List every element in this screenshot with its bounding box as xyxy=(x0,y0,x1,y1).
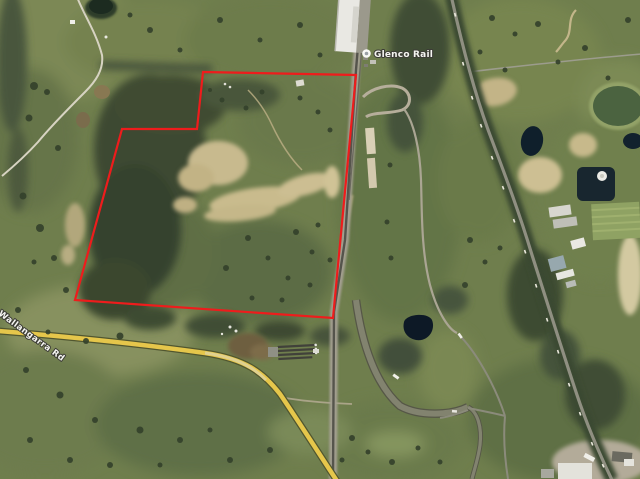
storage-pond xyxy=(577,167,615,201)
shed xyxy=(268,347,278,357)
striped-paddock xyxy=(591,202,640,240)
satellite-map-image[interactable]: Glenco Rail Wallangarra Rd xyxy=(0,0,640,479)
poi-label: Glenco Rail xyxy=(374,50,433,60)
satellite-map-canvas[interactable]: Glenco Rail Wallangarra Rd xyxy=(0,0,640,479)
bottom-warehouse xyxy=(558,463,592,479)
siding-platform xyxy=(365,128,376,155)
